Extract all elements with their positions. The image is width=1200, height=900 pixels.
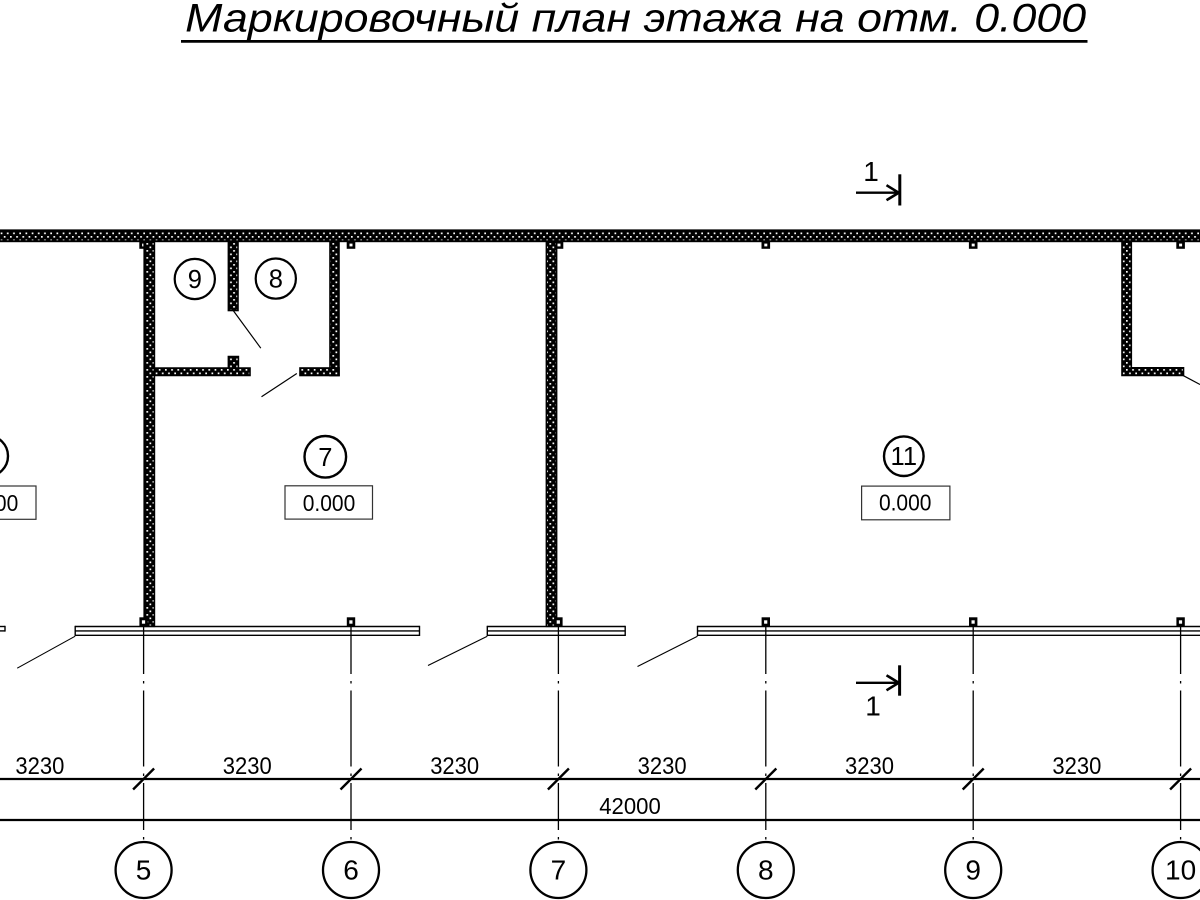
svg-text:8: 8 — [758, 855, 774, 886]
svg-text:3230: 3230 — [430, 754, 479, 780]
svg-text:7: 7 — [551, 855, 567, 886]
svg-text:0.000: 0.000 — [879, 490, 932, 516]
svg-text:5: 5 — [136, 855, 152, 886]
svg-text:3230: 3230 — [223, 754, 272, 780]
svg-text:7: 7 — [318, 444, 332, 472]
svg-text:0.000: 0.000 — [0, 490, 18, 516]
svg-text:3230: 3230 — [845, 754, 894, 780]
svg-text:10: 10 — [1165, 855, 1196, 886]
svg-text:0.000: 0.000 — [303, 490, 356, 516]
svg-text:1: 1 — [865, 691, 881, 722]
svg-text:8: 8 — [269, 266, 283, 294]
svg-text:42000: 42000 — [599, 793, 661, 819]
svg-text:3230: 3230 — [638, 754, 687, 780]
svg-text:Маркировочный план этажа на от: Маркировочный план этажа на отм. 0.000 — [185, 0, 1086, 40]
svg-text:1: 1 — [863, 156, 879, 187]
svg-text:3230: 3230 — [1052, 754, 1101, 780]
svg-text:11: 11 — [891, 443, 917, 471]
svg-text:9: 9 — [188, 266, 202, 294]
svg-text:9: 9 — [965, 855, 981, 886]
svg-text:3230: 3230 — [15, 754, 64, 780]
svg-text:6: 6 — [343, 855, 359, 886]
